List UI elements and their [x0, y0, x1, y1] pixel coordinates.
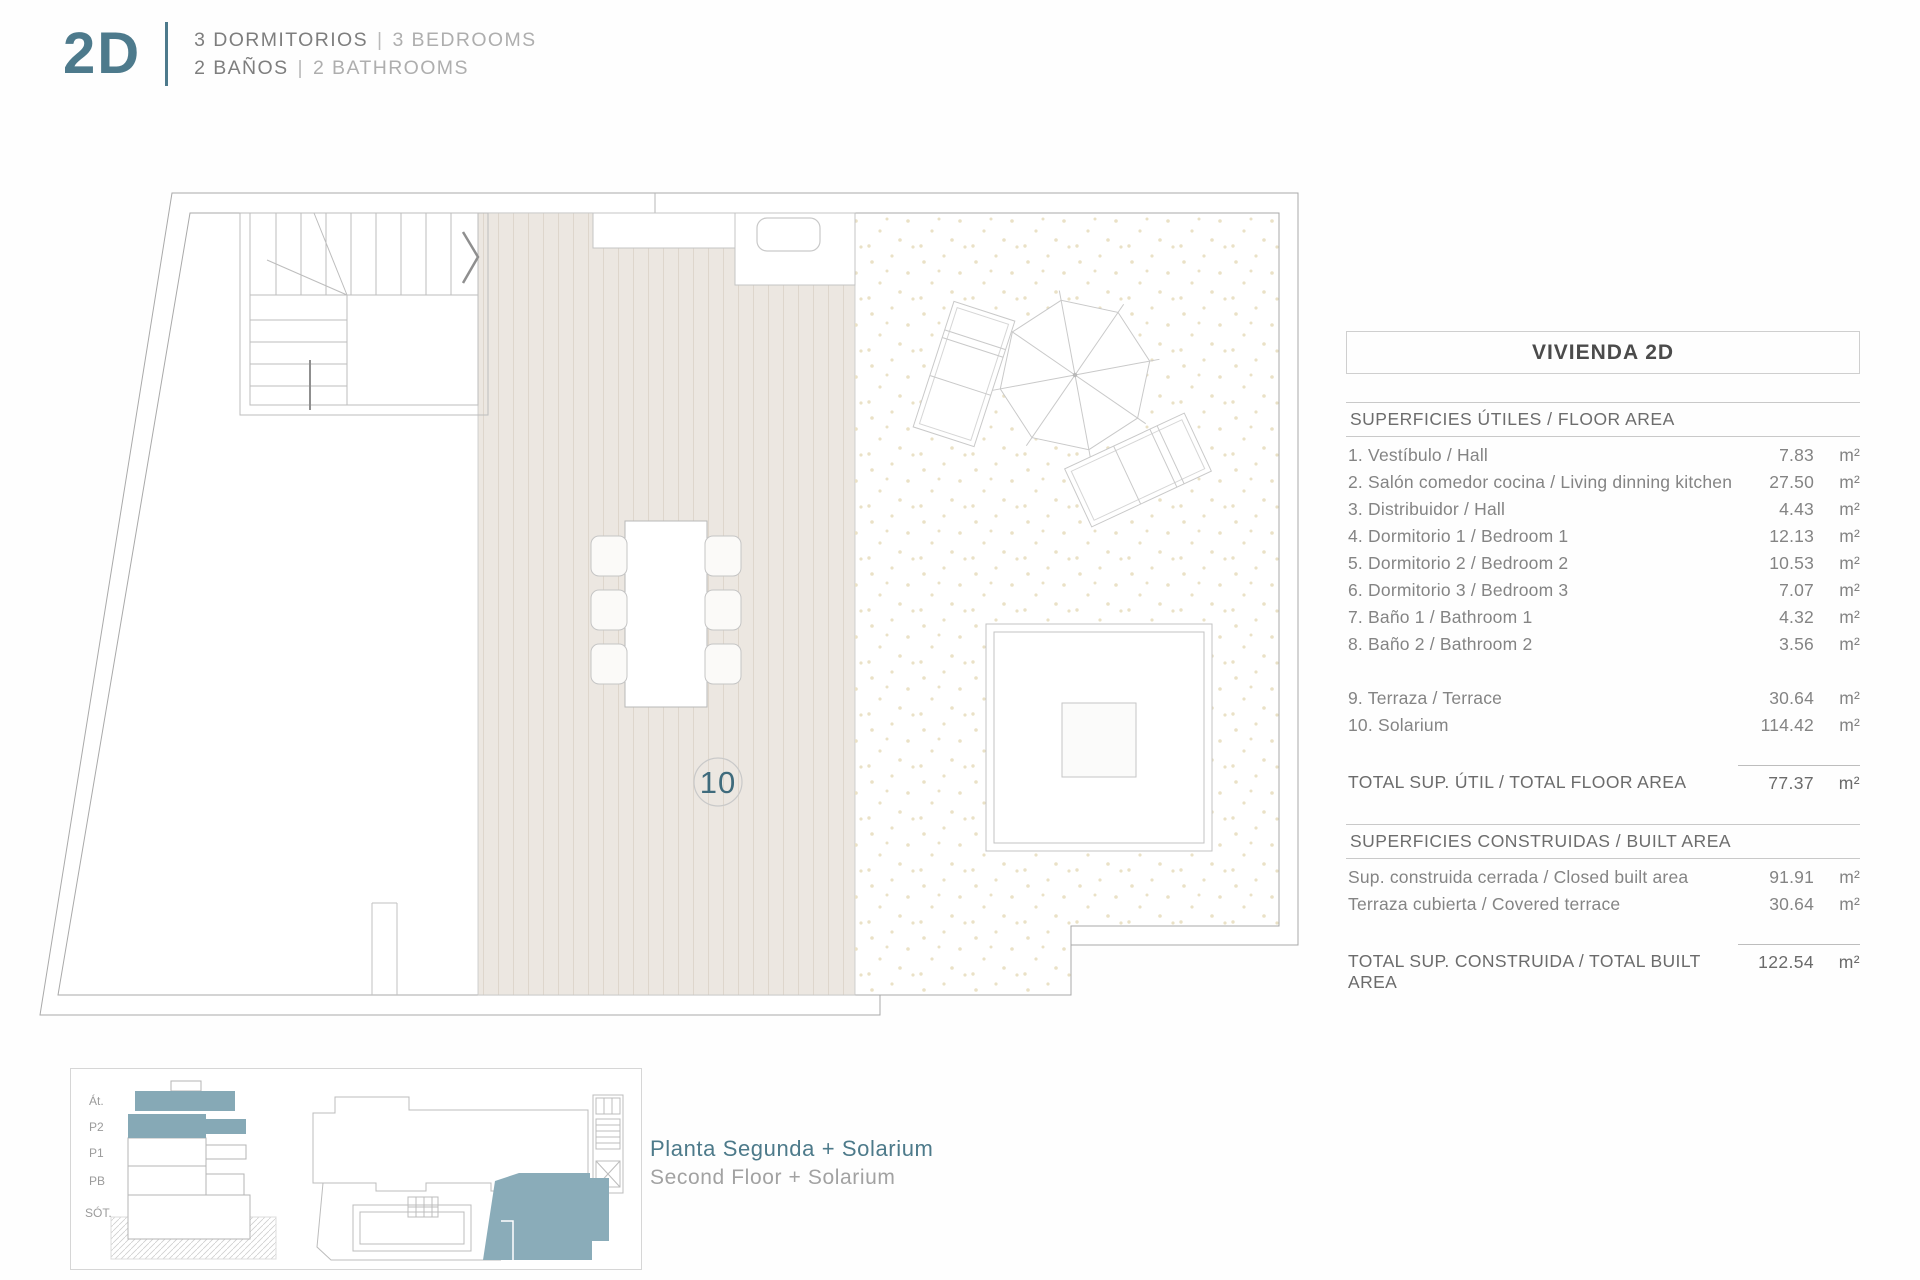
floor-area-rows: 1. Vestíbulo / Hall 7.83 m² 2. Salón com… — [1346, 437, 1860, 658]
total-floor-area-row: TOTAL SUP. ÚTIL / TOTAL FLOOR AREA 77.37… — [1346, 765, 1860, 794]
bedrooms-en: 3 BEDROOMS — [392, 29, 536, 51]
built-area-rows: Sup. construida cerrada / Closed built a… — [1346, 859, 1860, 918]
pool — [353, 1205, 471, 1251]
bathrooms-es: 2 BAÑOS — [194, 57, 288, 79]
table-row: 2. Salón comedor cocina / Living dinning… — [1346, 469, 1860, 496]
table-title: VIVIENDA 2D — [1346, 331, 1860, 374]
table-row: Terraza cubierta / Covered terrace 30.64… — [1346, 891, 1860, 918]
separator: | — [298, 57, 304, 79]
site-plan — [313, 1095, 623, 1260]
outdoor-rows: 9. Terraza / Terrace 30.64 m² 10. Solari… — [1346, 680, 1860, 739]
sink-unit — [735, 213, 855, 285]
total-built-area-row: TOTAL SUP. CONSTRUIDA / TOTAL BUILT AREA… — [1346, 944, 1860, 993]
floor-label: P2 — [89, 1120, 104, 1134]
table-row: 4. Dormitorio 1 / Bedroom 1 12.13 m² — [1346, 523, 1860, 550]
area-table: VIVIENDA 2D SUPERFICIES ÚTILES / FLOOR A… — [1346, 331, 1860, 993]
table-row: 1. Vestíbulo / Hall 7.83 m² — [1346, 442, 1860, 469]
caption-en: Second Floor + Solarium — [650, 1166, 933, 1190]
bedrooms-line: 3 DORMITORIOS|3 BEDROOMS — [194, 26, 536, 54]
floor-label: SÓT. — [85, 1205, 112, 1220]
counter — [593, 213, 735, 248]
bedrooms-es: 3 DORMITORIOS — [194, 29, 368, 51]
highlight-floor-atico — [135, 1091, 235, 1111]
unit-highlight — [483, 1173, 609, 1260]
key-plan-box: Át. P2 P1 PB SÓT. — [70, 1068, 642, 1270]
table-row: 6. Dormitorio 3 / Bedroom 3 7.07 m² — [1346, 577, 1860, 604]
building-section: Át. P2 P1 PB SÓT. — [85, 1081, 276, 1259]
caption-es: Planta Segunda + Solarium — [650, 1136, 933, 1162]
solarium-label: 10 — [694, 758, 742, 806]
table-row: 9. Terraza / Terrace 30.64 m² — [1346, 685, 1860, 712]
table-row: 8. Baño 2 / Bathroom 2 3.56 m² — [1346, 631, 1860, 658]
floor-area-section-header: SUPERFICIES ÚTILES / FLOOR AREA — [1346, 402, 1860, 437]
highlight-floor-p2 — [128, 1114, 206, 1138]
svg-text:10: 10 — [700, 765, 736, 800]
table-row: 10. Solarium 114.42 m² — [1346, 712, 1860, 739]
header-divider — [165, 22, 168, 86]
floor-plan: 10 — [33, 148, 1301, 1030]
table-row: Sup. construida cerrada / Closed built a… — [1346, 864, 1860, 891]
floor-label: P1 — [89, 1146, 104, 1160]
bathrooms-line: 2 BAÑOS|2 BATHROOMS — [194, 54, 536, 82]
unit-code: 2D — [63, 25, 141, 83]
table-row: 3. Distribuidor / Hall 4.43 m² — [1346, 496, 1860, 523]
floor-label: PB — [89, 1174, 105, 1188]
built-area-section-header: SUPERFICIES CONSTRUIDAS / BUILT AREA — [1346, 824, 1860, 859]
dining-table — [625, 521, 707, 707]
unit-specs: 3 DORMITORIOS|3 BEDROOMS 2 BAÑOS|2 BATHR… — [194, 26, 536, 82]
table-row: 5. Dormitorio 2 / Bedroom 2 10.53 m² — [1346, 550, 1860, 577]
bathrooms-en: 2 BATHROOMS — [313, 57, 469, 79]
page-header: 2D 3 DORMITORIOS|3 BEDROOMS 2 BAÑOS|2 BA… — [63, 22, 537, 86]
skylight — [986, 624, 1212, 851]
table-row: 7. Baño 1 / Bathroom 1 4.32 m² — [1346, 604, 1860, 631]
separator: | — [377, 29, 383, 51]
plan-caption: Planta Segunda + Solarium Second Floor +… — [650, 1136, 933, 1190]
floor-label: Át. — [89, 1093, 104, 1108]
